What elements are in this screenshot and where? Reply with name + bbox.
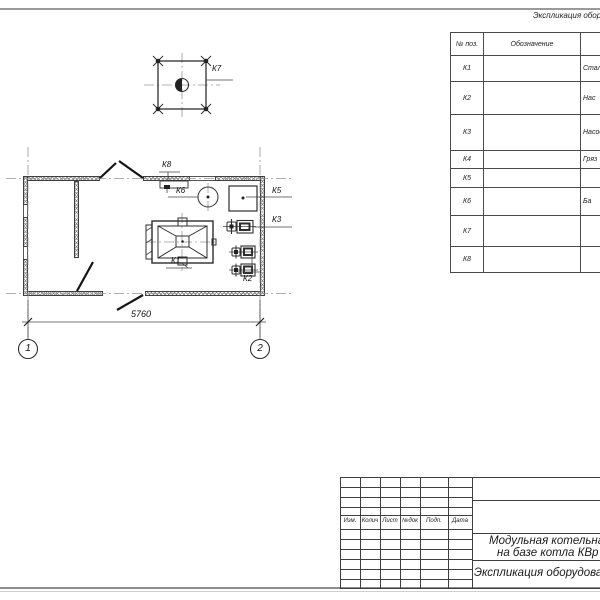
row-designation — [484, 115, 581, 151]
tb-col-izm: Изм. — [340, 518, 360, 524]
row-designation — [484, 216, 581, 247]
row-designation — [484, 188, 581, 216]
tag-k5: К5 — [272, 186, 281, 195]
boiler-k1 — [146, 218, 216, 268]
plan-linework — [0, 42, 300, 372]
row-name: Насос — [581, 115, 600, 151]
row-pos: К1 — [451, 56, 484, 82]
row-pos: К2 — [451, 82, 484, 115]
row-name: Стальной — [581, 56, 600, 82]
tag-k3: К3 — [272, 215, 281, 224]
row-pos: К3 — [451, 115, 484, 151]
row-designation — [484, 169, 581, 188]
page-bottom-shadow — [0, 591, 600, 592]
drawing-page: К7 К8 К6 К5 К3 К1 К2 5760 1 2 Экспликаци… — [0, 0, 600, 600]
table-row: К2 Нас — [451, 82, 600, 115]
row-designation — [484, 56, 581, 82]
pump-k3 — [223, 219, 292, 234]
table-row: К5 — [451, 169, 600, 188]
row-name — [581, 247, 600, 273]
tb-col-podp: Подп. — [420, 518, 448, 524]
row-name — [581, 216, 600, 247]
row-designation — [484, 151, 581, 169]
row-pos: К7 — [451, 216, 484, 247]
col-header-designation: Обозначение — [484, 33, 581, 56]
table-row: К7 — [451, 216, 600, 247]
row-designation — [484, 247, 581, 273]
row-pos: К8 — [451, 247, 484, 273]
tag-k7: К7 — [212, 64, 221, 73]
row-name — [581, 169, 600, 188]
tb-col-kolich: Колич — [360, 518, 380, 524]
tag-k6: К6 — [176, 186, 185, 195]
table-row: К6 Ба — [451, 188, 600, 216]
row-pos: К5 — [451, 169, 484, 188]
tb-col-ndok: №док — [400, 518, 420, 524]
tag-k1: К1 — [171, 256, 180, 265]
axis-label-1: 1 — [20, 343, 36, 354]
table-row: К8 — [451, 247, 600, 273]
row-designation — [484, 82, 581, 115]
tag-k2: К2 — [243, 274, 252, 283]
unit-k5 — [229, 186, 292, 211]
row-pos: К4 — [451, 151, 484, 169]
row-name: Гряз — [581, 151, 600, 169]
col-header-pos: № поз. — [451, 33, 484, 56]
row-name: Нас — [581, 82, 600, 115]
tb-col-data: Дата — [448, 518, 472, 524]
equipment-table-title: Экспликация оборудования — [533, 11, 600, 20]
pumps-k2 — [229, 246, 260, 277]
table-header-row: № поз. Обозначение — [451, 33, 600, 56]
table-row: К3 Насос — [451, 115, 600, 151]
sheet-title: Экспликация оборудования — [474, 567, 600, 579]
dimension-line — [22, 300, 266, 340]
row-pos: К6 — [451, 188, 484, 216]
equipment-table: № поз. Обозначение К1 Стальной К2 Нас К3… — [450, 32, 600, 273]
axis-label-2: 2 — [252, 343, 268, 354]
project-title-line1: Модульная котельная — [489, 535, 600, 547]
table-row: К1 Стальной — [451, 56, 600, 82]
row-name: Ба — [581, 188, 600, 216]
project-title-line2: на базе котла КВр — [497, 547, 598, 559]
tb-col-list: Лист — [380, 518, 400, 524]
tag-k8: К8 — [162, 160, 171, 169]
col-header-name — [581, 33, 600, 56]
door-leaves — [77, 161, 143, 310]
dimension-text: 5760 — [131, 309, 151, 319]
page-top-edge — [0, 8, 600, 10]
table-row: К4 Гряз — [451, 151, 600, 169]
